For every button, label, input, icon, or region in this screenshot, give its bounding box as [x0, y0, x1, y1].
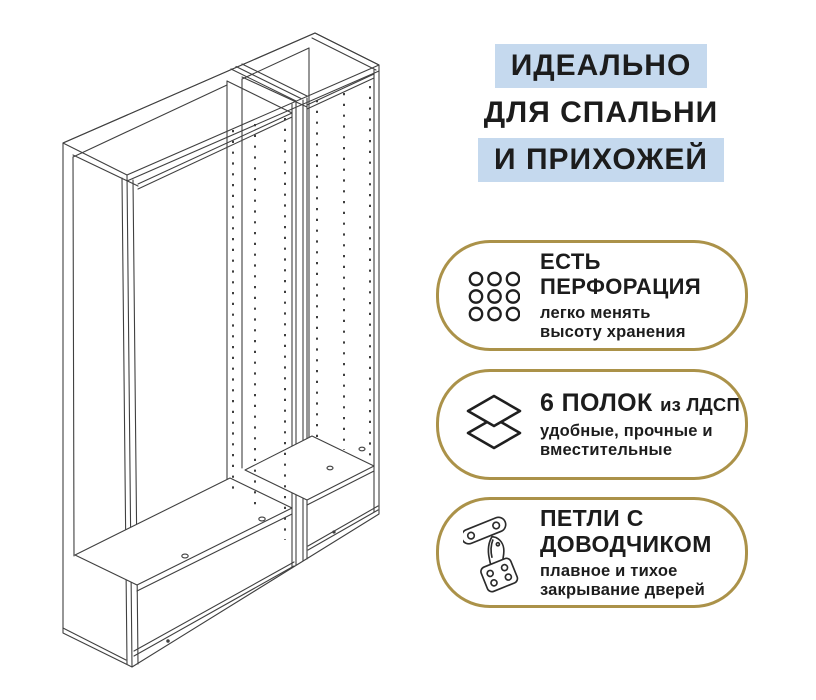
headline: ИДЕАЛЬНО ДЛЯ СПАЛЬНИ И ПРИХОЖЕЙ [432, 44, 770, 182]
badge-sub-line: закрывание дверей [540, 581, 712, 600]
badge-title-line: ЕСТЬ [540, 249, 701, 275]
badge-text: ПЕТЛИ С ДОВОДЧИКОМ плавное и тихое закры… [540, 505, 712, 601]
headline-line-1: ИДЕАЛЬНО [495, 44, 708, 88]
badge-title-line: 6 ПОЛОК из ЛДСП [540, 389, 740, 418]
headline-line-3: И ПРИХОЖЕЙ [478, 138, 724, 182]
badge-title-line: ПЕТЛИ С [540, 505, 712, 532]
badge-title-suffix: из ЛДСП [660, 394, 740, 415]
headline-line-2: ДЛЯ СПАЛЬНИ [482, 95, 720, 131]
feature-badge-perforation: ЕСТЬ ПЕРФОРАЦИЯ легко менять высоту хран… [436, 240, 748, 351]
badge-sub-line: вместительные [540, 441, 740, 460]
badge-sub-line: удобные, прочные и [540, 422, 740, 441]
wardrobe-frame-illustration [0, 0, 440, 700]
shelves-layers-icon [463, 394, 525, 456]
badge-title-line: ПЕРФОРАЦИЯ [540, 274, 701, 300]
perforation-grid-icon [463, 270, 525, 322]
badge-title-line: ДОВОДЧИКОМ [540, 531, 712, 558]
feature-badge-hinges: ПЕТЛИ С ДОВОДЧИКОМ плавное и тихое закры… [436, 497, 748, 608]
badge-sub-line: плавное и тихое [540, 562, 712, 581]
badge-text: ЕСТЬ ПЕРФОРАЦИЯ легко менять высоту хран… [540, 249, 701, 343]
wardrobe-outline [63, 33, 379, 667]
badge-sub-line: высоту хранения [540, 323, 701, 342]
badge-text: 6 ПОЛОК из ЛДСП удобные, прочные и вмест… [540, 389, 740, 461]
feature-badge-shelves: 6 ПОЛОК из ЛДСП удобные, прочные и вмест… [436, 369, 748, 480]
hinge-icon [463, 513, 525, 593]
product-infographic-page: { "headline": { "line1": "ИДЕАЛЬНО", "li… [0, 0, 816, 700]
badge-sub-line: легко менять [540, 304, 701, 323]
